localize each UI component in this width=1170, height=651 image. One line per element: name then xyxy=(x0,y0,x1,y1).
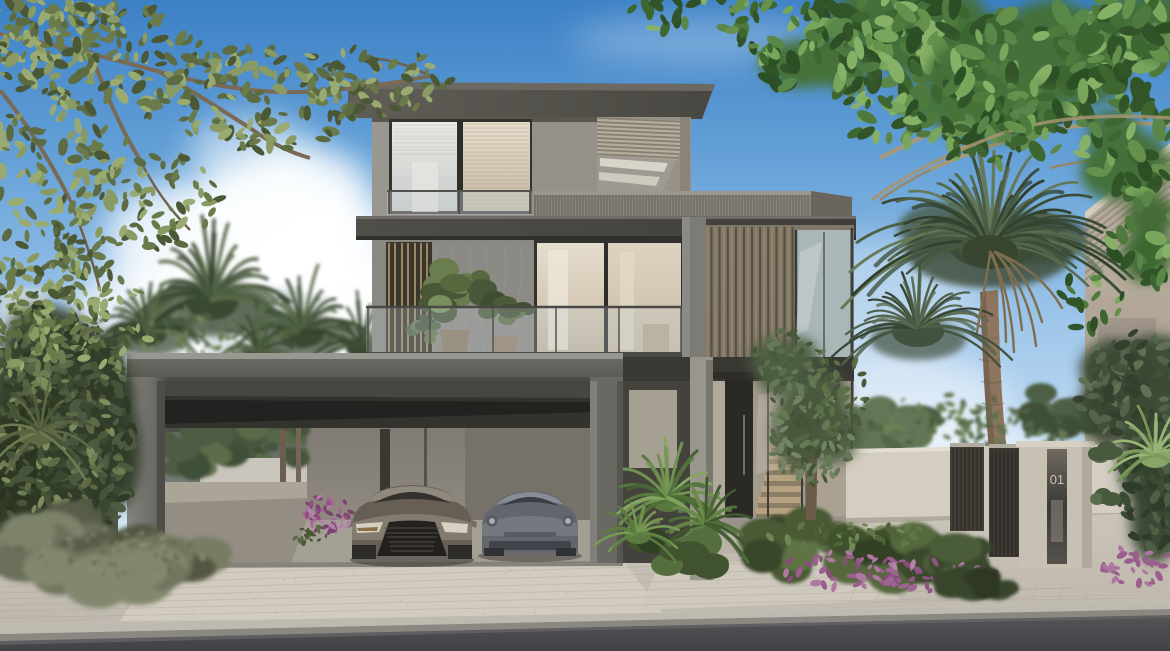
svg-text:01: 01 xyxy=(1050,472,1064,487)
